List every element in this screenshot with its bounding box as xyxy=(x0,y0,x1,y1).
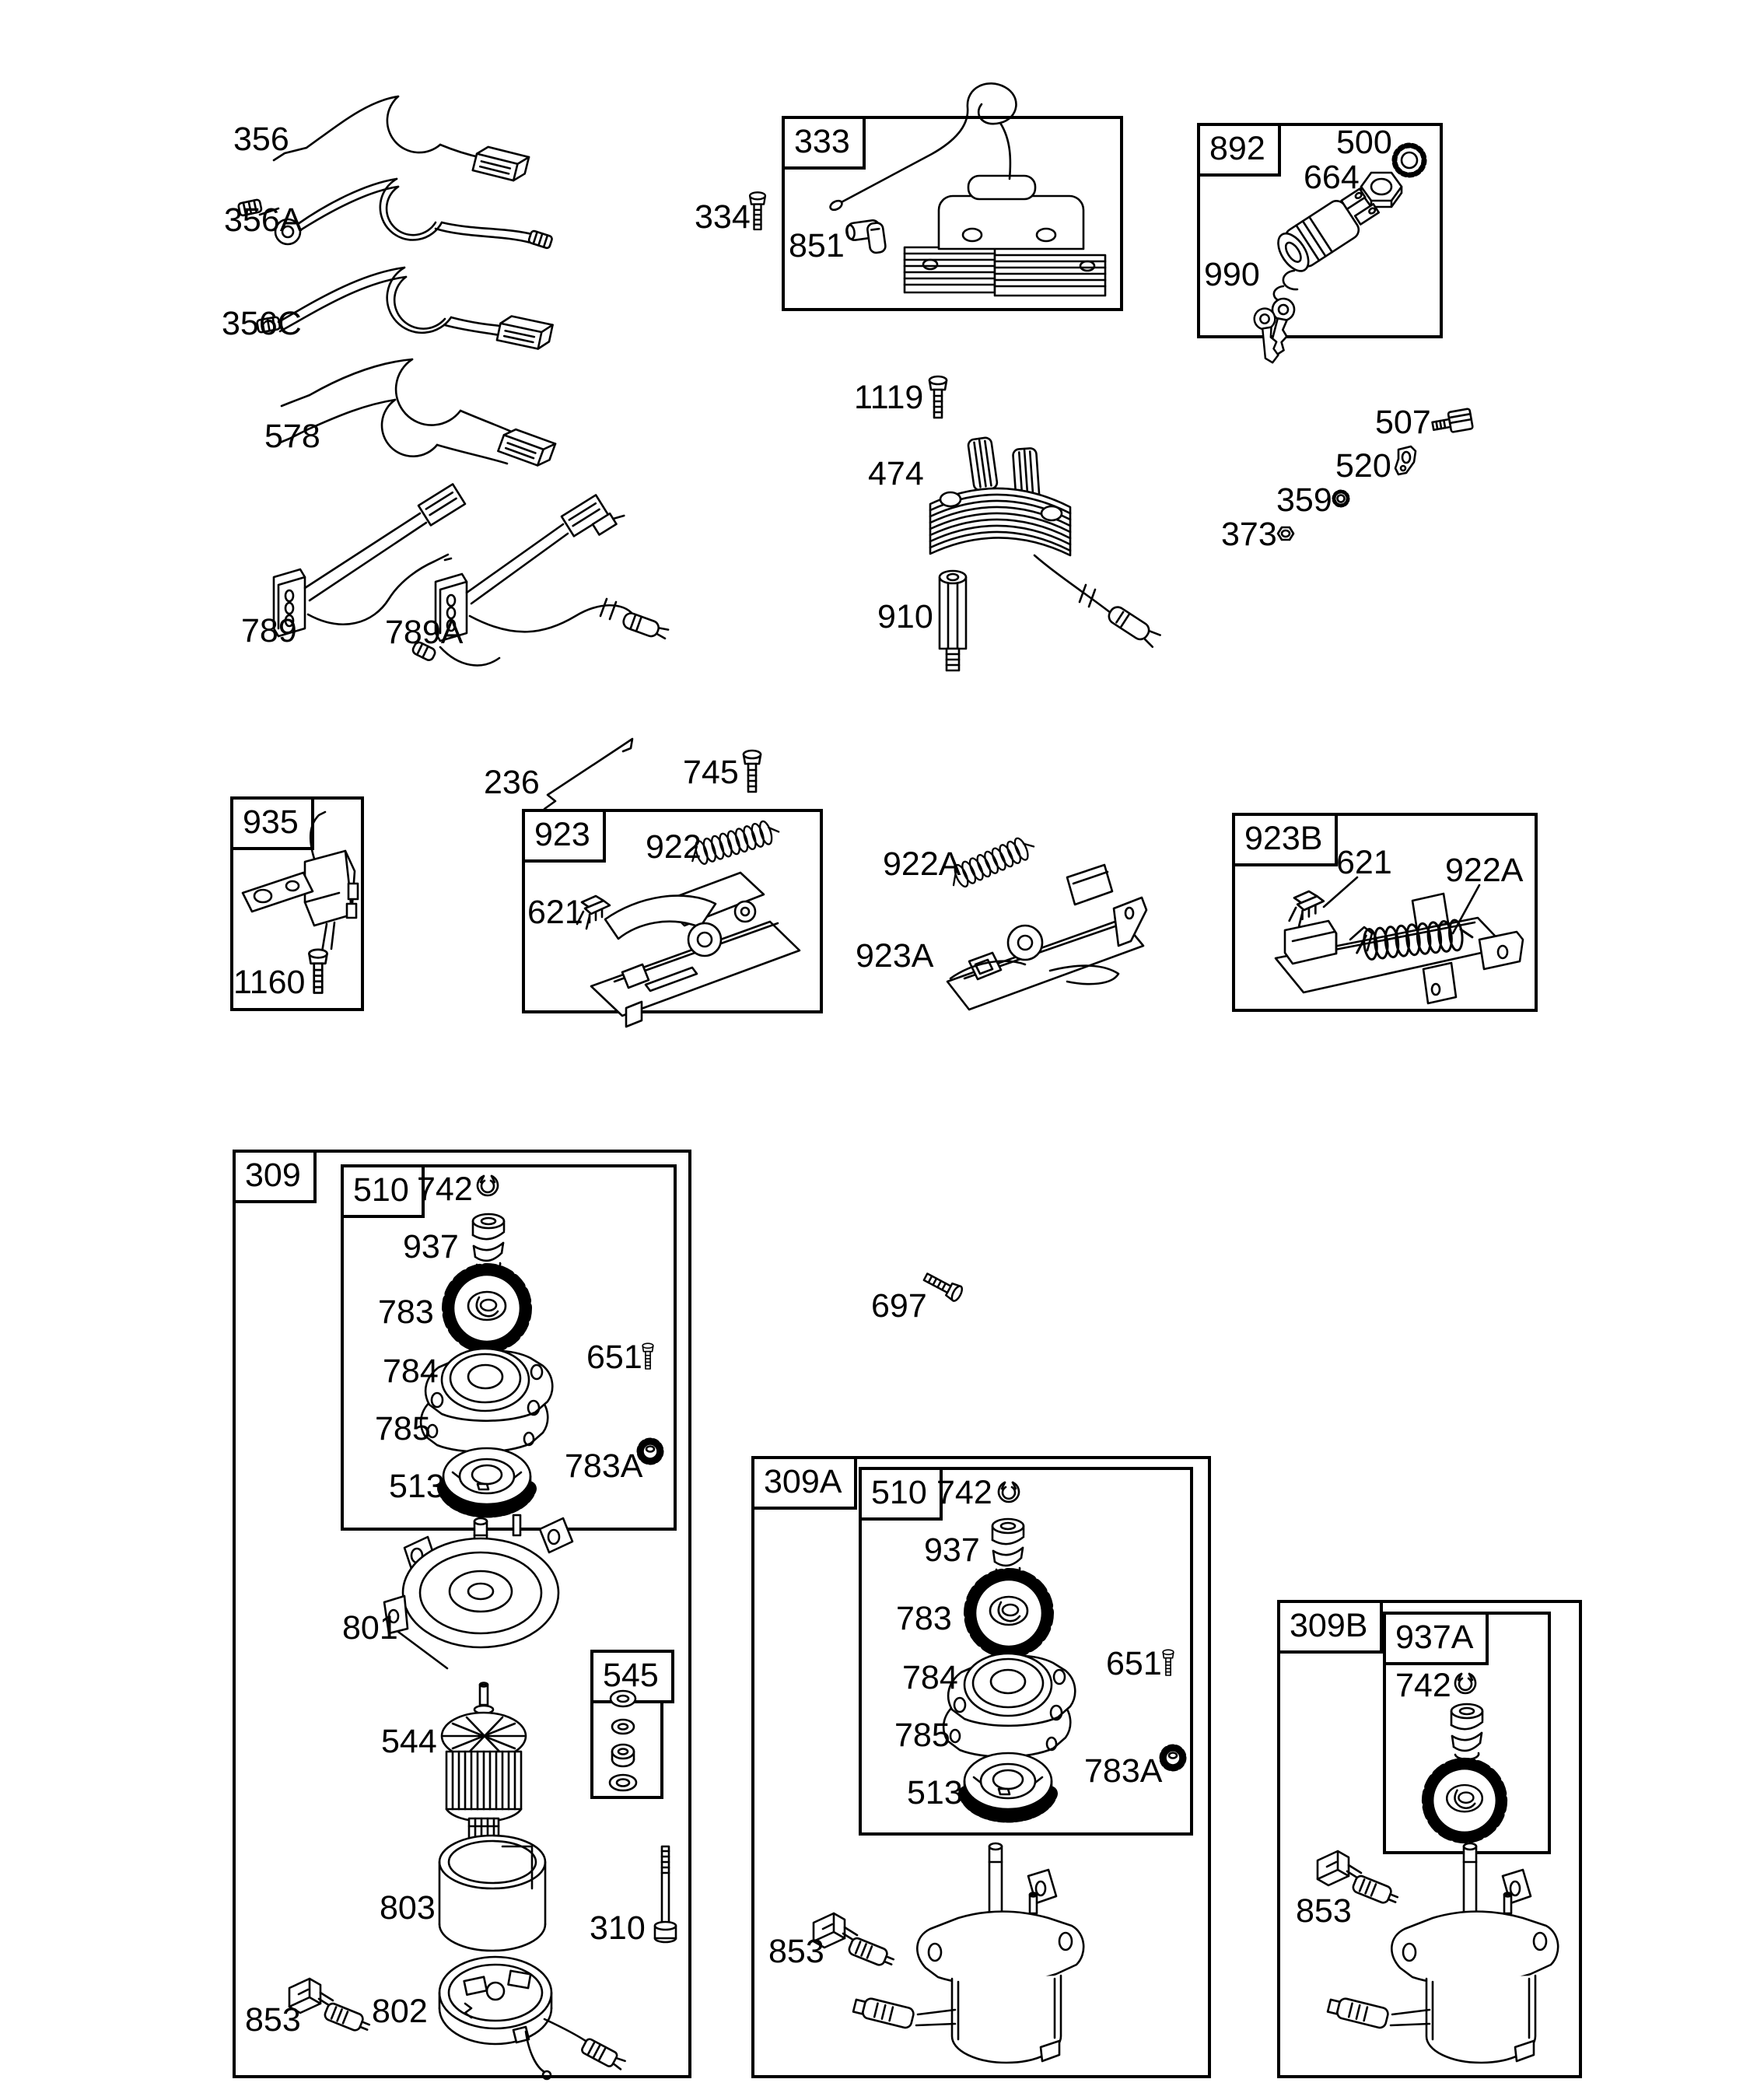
part-802-brush-end-cap xyxy=(439,1957,626,2079)
callout-784: 784 xyxy=(383,1355,439,1388)
part-923A-brake-assembly xyxy=(947,865,1146,1010)
callout-802: 802 xyxy=(372,1995,428,2028)
leader-621 xyxy=(1324,877,1357,907)
callout-783A: 783A xyxy=(565,1450,642,1483)
callout-742: 742 xyxy=(417,1173,473,1206)
part-356-wire-assembly xyxy=(274,96,529,183)
callout-359: 359 xyxy=(1276,484,1332,517)
callout-578: 578 xyxy=(264,420,320,453)
part-851-spark-boot xyxy=(845,219,886,257)
part-745-screw xyxy=(744,751,761,792)
part-500-star-washer xyxy=(1395,145,1424,175)
callout-500: 500 xyxy=(1336,126,1392,159)
callout-1119: 1119 xyxy=(854,381,923,415)
part-937A-gear xyxy=(1428,1764,1502,1838)
part-910-standoff xyxy=(940,571,966,670)
part-935-bracket xyxy=(243,812,358,952)
callout-853: 853 xyxy=(245,2004,301,2037)
callout-513: 513 xyxy=(389,1470,445,1503)
part-937-helix xyxy=(473,1214,504,1269)
callout-513a: 513 xyxy=(907,1776,963,1810)
part-513-clutch xyxy=(964,1753,1052,1815)
part-853-connector xyxy=(814,1913,896,1969)
callout-621b: 621 xyxy=(1336,846,1392,880)
callout-507: 507 xyxy=(1375,406,1431,439)
part-359-star-washer xyxy=(1334,492,1348,506)
callout-544: 544 xyxy=(381,1725,437,1759)
part-578-wire-assembly xyxy=(280,359,555,469)
callout-783Aa: 783A xyxy=(1084,1755,1162,1788)
part-513-clutch xyxy=(443,1448,530,1510)
callout-937: 937 xyxy=(403,1230,459,1264)
callout-356A: 356A xyxy=(224,204,302,237)
part-853-connector xyxy=(289,1979,372,2035)
part-783A-pinion xyxy=(640,1441,660,1461)
part-1160-screw xyxy=(309,950,327,993)
callout-785a: 785 xyxy=(894,1719,950,1752)
callout-356C: 356C xyxy=(222,307,302,341)
callout-1160: 1160 xyxy=(233,966,305,999)
part-923B-brake-assembly xyxy=(1276,877,1523,1003)
callout-851: 851 xyxy=(789,229,845,263)
callout-937a: 937 xyxy=(924,1534,980,1567)
callout-621: 621 xyxy=(527,896,583,929)
callout-922Ab: 922A xyxy=(1445,854,1523,887)
part-333-ignition-coil xyxy=(829,83,1105,296)
callout-474: 474 xyxy=(868,457,924,491)
callout-742a: 742 xyxy=(936,1476,992,1510)
part-373-nut xyxy=(1278,527,1293,540)
callout-923A: 923A xyxy=(856,940,933,973)
part-742-retaining-ring xyxy=(478,1176,498,1195)
callout-745: 745 xyxy=(683,756,739,789)
callout-853b: 853 xyxy=(1296,1895,1352,1928)
callout-236: 236 xyxy=(484,766,540,800)
callout-742b: 742 xyxy=(1395,1669,1451,1703)
part-507-terminal-switch xyxy=(1431,408,1473,435)
part-784-785-housing xyxy=(943,1654,1075,1757)
callout-910: 910 xyxy=(877,600,933,634)
part-236-wire-link xyxy=(544,739,632,809)
part-545-washer-kit xyxy=(610,1691,636,1790)
part-937A-helix xyxy=(1451,1704,1482,1759)
callout-373: 373 xyxy=(1221,518,1277,551)
callout-784a: 784 xyxy=(902,1661,958,1695)
callout-785: 785 xyxy=(375,1412,431,1446)
callout-783b: 783 xyxy=(896,1602,952,1636)
callout-783: 783 xyxy=(378,1296,434,1329)
callout-664: 664 xyxy=(1304,161,1360,194)
part-783-gear xyxy=(970,1574,1048,1652)
part-544-armature xyxy=(442,1683,526,1860)
callout-651a: 651 xyxy=(1106,1647,1162,1681)
part-310-through-bolt xyxy=(655,1846,676,1942)
part-742-retaining-ring xyxy=(1455,1674,1475,1693)
callout-922A: 922A xyxy=(883,848,961,881)
part-990-key-switch xyxy=(1252,184,1383,364)
part-664-nut xyxy=(1361,173,1402,207)
callout-789A: 789A xyxy=(385,616,463,649)
part-1119-screw xyxy=(929,376,947,418)
callout-922: 922 xyxy=(646,831,702,864)
callout-801: 801 xyxy=(342,1612,398,1645)
part-520-clip xyxy=(1395,446,1416,474)
part-783A-pinion xyxy=(1163,1748,1183,1768)
part-697-bolt xyxy=(922,1269,964,1302)
parts-diagram-canvas: 333 892 935 923 923B 309 510 545 309A 51… xyxy=(0,0,1750,2100)
callout-990: 990 xyxy=(1204,258,1260,292)
part-801-end-cap xyxy=(384,1515,572,1668)
part-937-helix xyxy=(992,1519,1024,1574)
callout-310: 310 xyxy=(590,1912,646,1945)
callout-334: 334 xyxy=(695,201,751,234)
callout-803: 803 xyxy=(380,1892,436,1925)
callout-697: 697 xyxy=(871,1290,927,1323)
part-334-screw xyxy=(750,192,765,229)
callout-789: 789 xyxy=(241,614,297,648)
callout-853a: 853 xyxy=(768,1935,824,1969)
part-783-gear xyxy=(448,1269,526,1347)
part-803-motor-housing xyxy=(439,1836,545,1951)
part-742-retaining-ring xyxy=(999,1482,1019,1502)
part-651-screw xyxy=(642,1343,653,1369)
part-651-screw xyxy=(1163,1650,1174,1675)
part-784-785-housing xyxy=(421,1349,552,1452)
callout-651: 651 xyxy=(586,1341,642,1374)
callout-520: 520 xyxy=(1335,450,1391,483)
callout-356: 356 xyxy=(233,123,289,156)
